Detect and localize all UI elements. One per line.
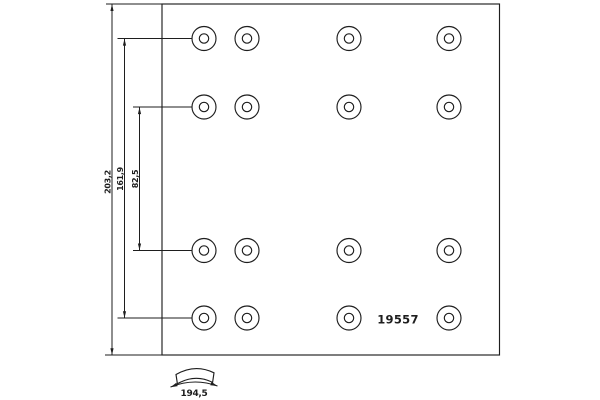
rivet-hole-outer-circle: [337, 306, 361, 330]
arrow-left-icon: [171, 383, 178, 388]
drawing-canvas: 203,2 161,9 82,5 19557 194,5: [0, 0, 600, 400]
rivet-hole: [192, 27, 216, 51]
rivet-hole-inner-circle: [199, 34, 208, 43]
rivet-hole-outer-circle: [437, 239, 461, 263]
rivet-hole-inner-circle: [444, 313, 453, 322]
rivet-hole-inner-circle: [444, 102, 453, 111]
rivet-hole: [192, 306, 216, 330]
arrow-up-icon: [110, 4, 113, 11]
rivet-hole: [192, 95, 216, 119]
rivet-hole: [437, 95, 461, 119]
arc-width-dimension-label: 194,5: [181, 389, 208, 399]
lining-outline: [162, 4, 500, 355]
rivet-hole-outer-circle: [192, 27, 216, 51]
rivet-hole-outer-circle: [192, 239, 216, 263]
rivet-hole: [235, 27, 259, 51]
rivet-hole: [437, 306, 461, 330]
rivet-hole-outer-circle: [235, 27, 259, 51]
rivet-hole: [437, 239, 461, 263]
rivet-hole-outer-circle: [235, 95, 259, 119]
rivet-hole-inner-circle: [199, 246, 208, 255]
rivet-hole: [337, 239, 361, 263]
arrow-right-icon: [210, 382, 217, 386]
rivet-hole-inner-circle: [199, 102, 208, 111]
arrow-down-icon: [110, 348, 113, 355]
rivet-hole-inner-circle: [242, 246, 251, 255]
rivet-hole-outer-circle: [437, 27, 461, 51]
rivet-hole-outer-circle: [235, 239, 259, 263]
brake-lining-technical-drawing: 203,2 161,9 82,5 19557 194,5: [0, 0, 600, 400]
rivet-hole: [192, 239, 216, 263]
rivet-hole-inner-circle: [242, 313, 251, 322]
inner-rows-dimension-label: 82,5: [131, 169, 140, 188]
dimension-labels: 203,2 161,9 82,5: [104, 166, 141, 194]
rivet-hole: [337, 306, 361, 330]
rivet-holes: [192, 27, 461, 331]
rivet-hole-inner-circle: [344, 102, 353, 111]
rivet-hole-inner-circle: [242, 34, 251, 43]
arc-profile-symbol: 194,5: [171, 369, 218, 399]
rivet-hole-outer-circle: [192, 306, 216, 330]
rivet-hole-outer-circle: [437, 95, 461, 119]
rivet-hole: [337, 95, 361, 119]
rivet-hole: [437, 27, 461, 51]
rivet-hole: [337, 27, 361, 51]
rivet-hole-inner-circle: [344, 313, 353, 322]
rivet-hole-outer-circle: [337, 95, 361, 119]
rivet-hole-inner-circle: [242, 102, 251, 111]
rivet-hole-inner-circle: [444, 246, 453, 255]
rivet-hole: [235, 239, 259, 263]
rivet-hole-outer-circle: [192, 95, 216, 119]
rivet-hole: [235, 306, 259, 330]
arrow-up-icon: [123, 39, 126, 46]
outer-rows-dimension-label: 161,9: [116, 166, 125, 191]
rivet-hole-inner-circle: [199, 313, 208, 322]
total-width-dimension-label: 203,2: [104, 170, 113, 194]
rivet-hole-outer-circle: [437, 306, 461, 330]
rivet-hole-inner-circle: [444, 34, 453, 43]
rivet-hole-outer-circle: [337, 239, 361, 263]
rivet-hole-outer-circle: [337, 27, 361, 51]
rivet-hole-outer-circle: [235, 306, 259, 330]
part-number: 19557: [377, 313, 419, 327]
rivet-hole-inner-circle: [344, 246, 353, 255]
arrow-up-icon: [138, 107, 141, 114]
arrow-down-icon: [123, 311, 126, 318]
rivet-hole-inner-circle: [344, 34, 353, 43]
rivet-hole: [235, 95, 259, 119]
arrow-down-icon: [138, 244, 141, 251]
